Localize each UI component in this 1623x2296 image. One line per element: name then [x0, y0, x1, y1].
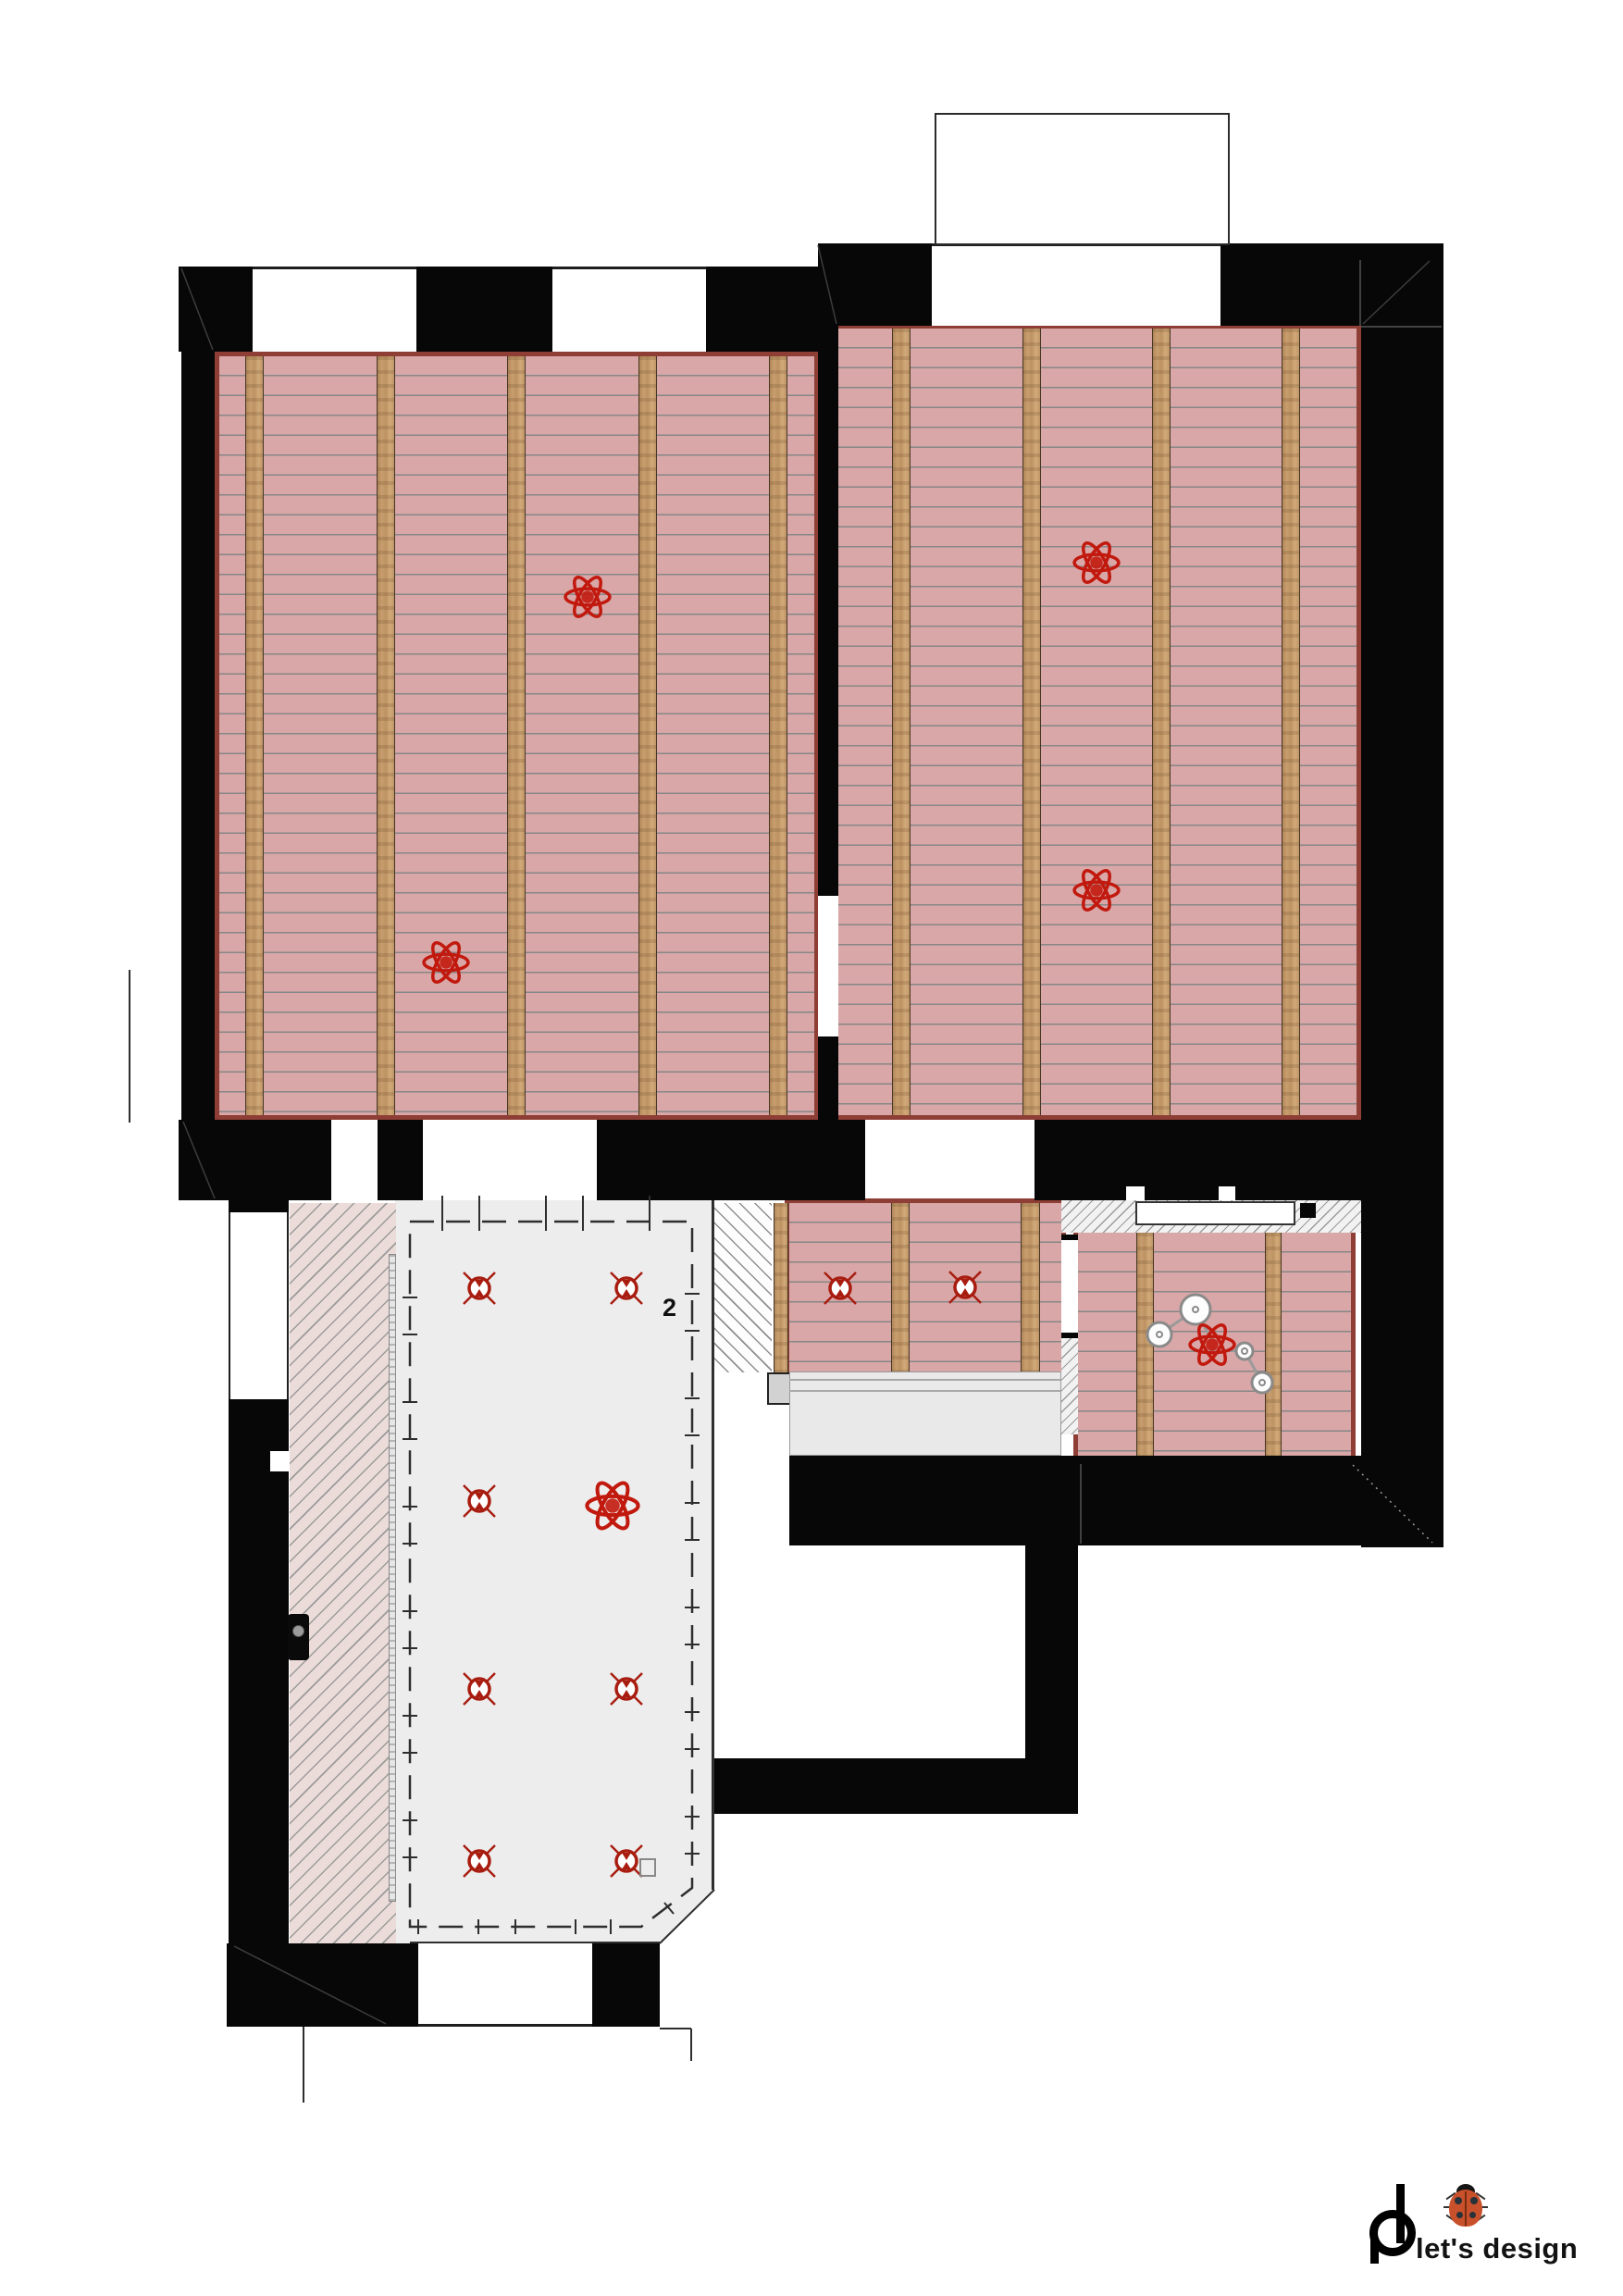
spotlight-symbol	[611, 1845, 642, 1877]
wall-corner-diagonal	[1363, 261, 1430, 324]
spotlight-symbol	[464, 1485, 495, 1517]
chandelier-symbol	[1074, 540, 1119, 586]
spotlight-symbol	[824, 1272, 856, 1304]
dotted-corner-diagonal	[1353, 1465, 1432, 1543]
wall-corner-diagonal	[234, 1946, 386, 2024]
spotlight-symbol	[611, 1673, 642, 1705]
pendant-light-symbol	[1252, 1372, 1272, 1393]
spotlight-symbol	[464, 1272, 495, 1304]
spotlight-symbol	[464, 1845, 495, 1877]
pendant-light-symbol	[1236, 1343, 1253, 1359]
boundary-line	[660, 1890, 714, 1943]
spotlight-symbol	[611, 1272, 642, 1304]
wall-corner-diagonal	[183, 1122, 215, 1198]
spotlight-symbol	[464, 1673, 495, 1705]
dashed-ceiling-border	[410, 1222, 692, 1927]
spotlight-symbol	[949, 1272, 981, 1303]
wall-corner-diagonal	[181, 268, 213, 350]
floor-plan-canvas: 2 let's design	[0, 0, 1623, 2296]
chandelier-symbol	[565, 574, 610, 620]
wall-corner-diagonal	[818, 245, 836, 324]
chandelier-symbol	[1074, 867, 1119, 913]
square-marker	[640, 1859, 655, 1876]
chandelier-symbol	[1190, 1322, 1234, 1368]
chandelier-symbol	[424, 939, 468, 986]
pendant-light-symbol	[1147, 1322, 1171, 1347]
pendant-light-symbol	[1181, 1295, 1210, 1324]
chandelier-symbol	[587, 1479, 638, 1533]
symbol-overlay	[0, 0, 1623, 2296]
